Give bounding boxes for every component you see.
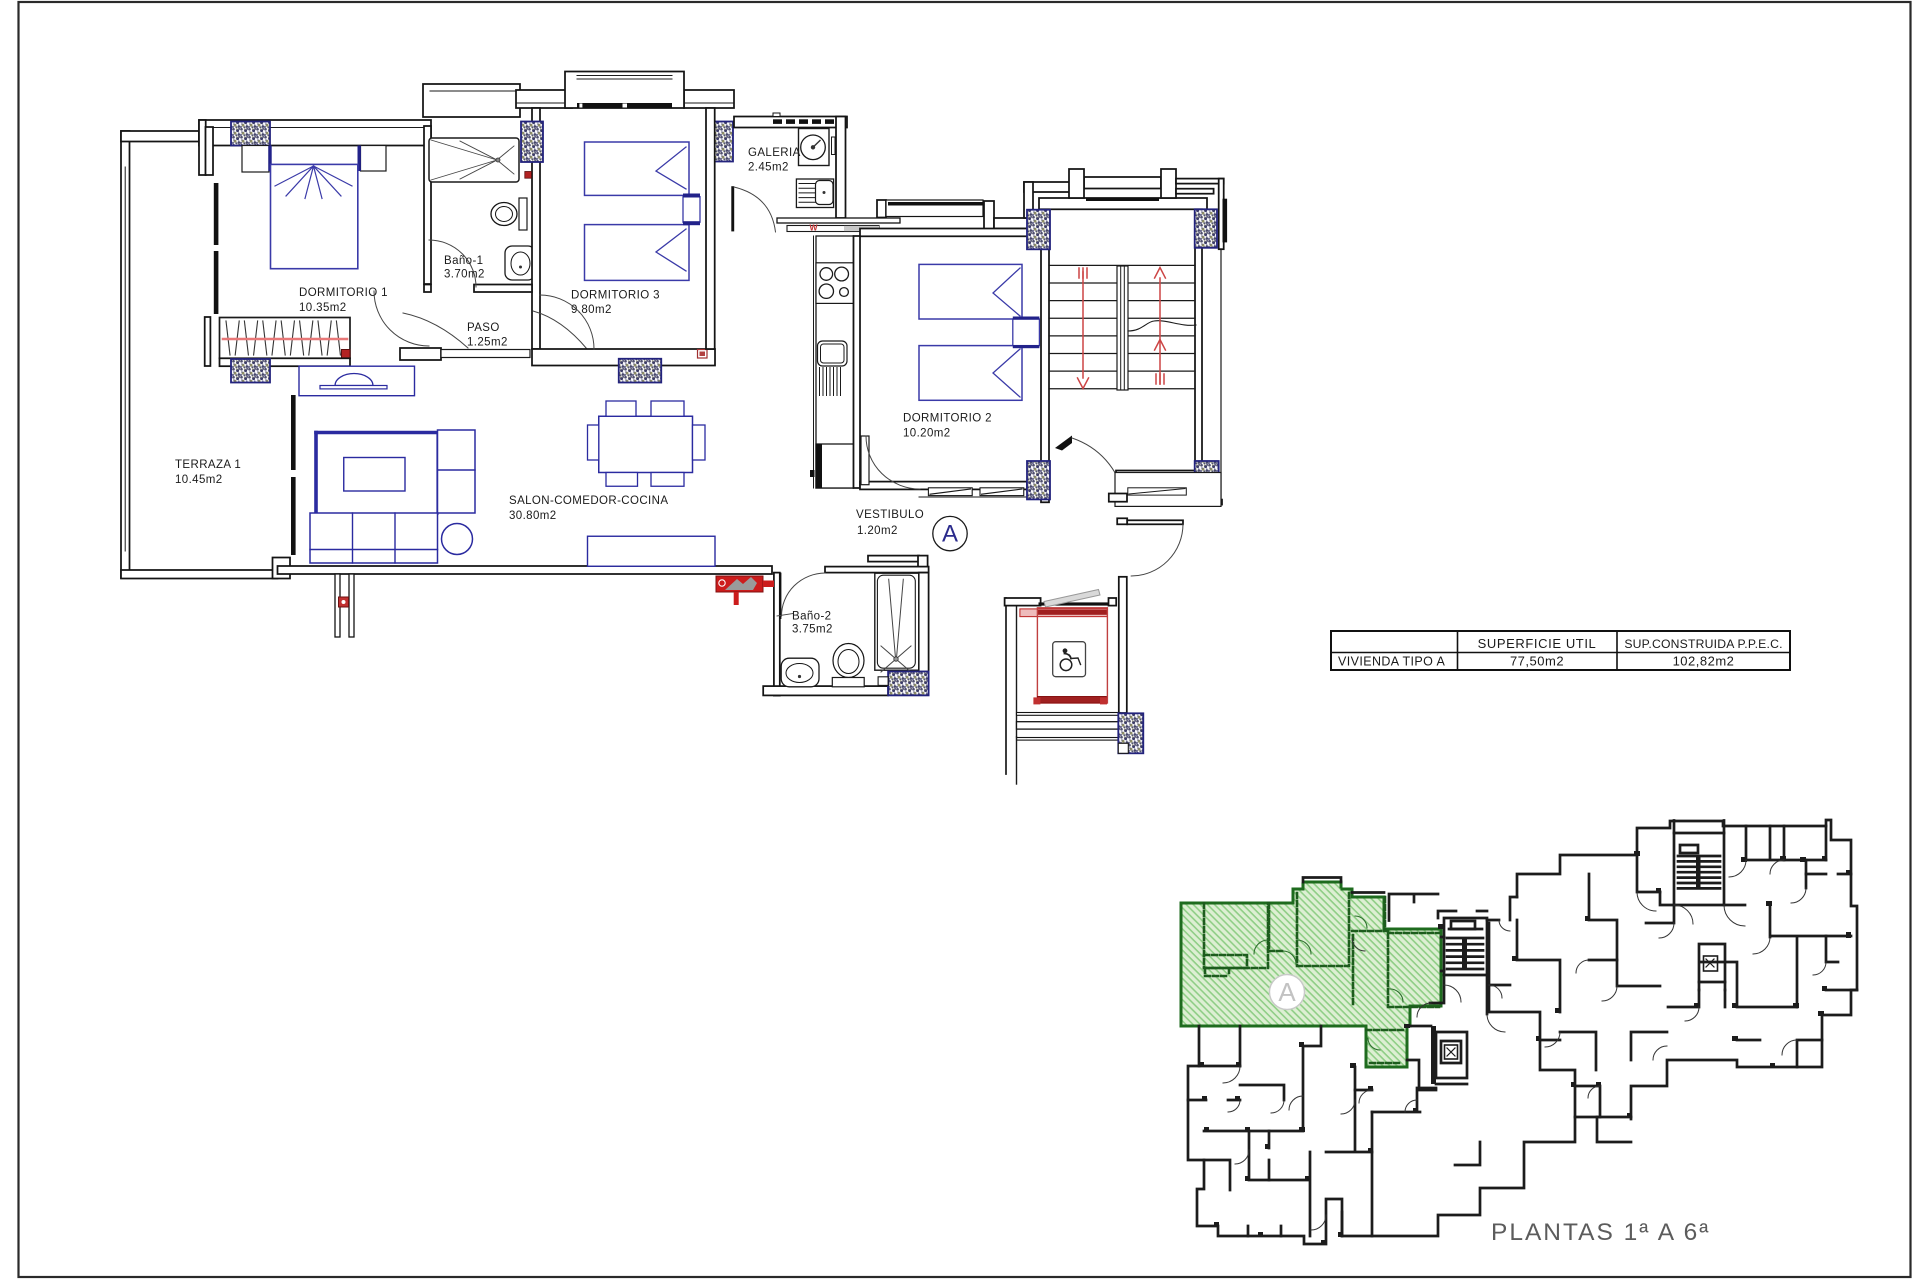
- svg-text:SALON-COMEDOR-COCINA: SALON-COMEDOR-COCINA: [509, 495, 668, 507]
- svg-text:SUP.CONSTRUIDA P.P.E.C.: SUP.CONSTRUIDA P.P.E.C.: [1624, 637, 1782, 651]
- svg-text:2.45m2: 2.45m2: [748, 162, 789, 174]
- svg-text:1.25m2: 1.25m2: [467, 337, 508, 349]
- svg-text:A: A: [942, 521, 958, 548]
- svg-text:PASO: PASO: [467, 322, 500, 334]
- svg-text:DORMITORIO 2: DORMITORIO 2: [903, 413, 992, 425]
- svg-text:TERRAZA 1: TERRAZA 1: [175, 459, 241, 471]
- svg-text:10.35m2: 10.35m2: [299, 302, 347, 314]
- svg-text:PLANTAS 1ª A 6ª: PLANTAS 1ª A 6ª: [1491, 1219, 1710, 1246]
- svg-text:GALERIA: GALERIA: [748, 147, 801, 159]
- svg-text:10.20m2: 10.20m2: [903, 428, 951, 440]
- svg-text:VESTIBULO: VESTIBULO: [856, 509, 924, 521]
- svg-text:W: W: [809, 223, 818, 233]
- svg-text:VIVIENDA TIPO A: VIVIENDA TIPO A: [1338, 655, 1445, 669]
- svg-text:3.70m2: 3.70m2: [444, 269, 485, 281]
- svg-text:30.80m2: 30.80m2: [509, 510, 557, 522]
- svg-text:SUPERFICIE UTIL: SUPERFICIE UTIL: [1478, 636, 1597, 651]
- svg-text:Baño-1: Baño-1: [444, 255, 483, 267]
- svg-text:DORMITORIO 3: DORMITORIO 3: [571, 290, 660, 302]
- svg-text:3.75m2: 3.75m2: [792, 624, 833, 636]
- svg-text:Baño-2: Baño-2: [792, 611, 831, 623]
- svg-text:A: A: [1278, 977, 1296, 1007]
- svg-text:77,50m2: 77,50m2: [1510, 654, 1564, 669]
- svg-text:1.20m2: 1.20m2: [857, 525, 898, 537]
- svg-text:102,82m2: 102,82m2: [1673, 654, 1735, 669]
- svg-text:10.45m2: 10.45m2: [175, 474, 223, 486]
